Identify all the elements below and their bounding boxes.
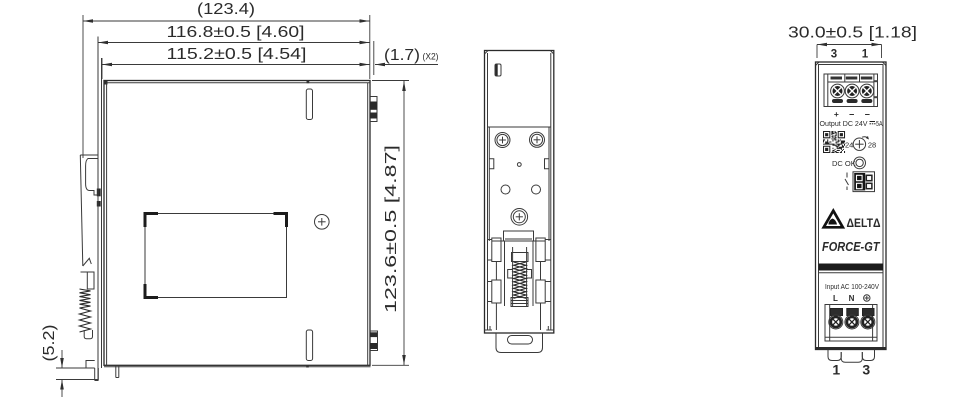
svg-text:30.0±0.5 [1.18]: 30.0±0.5 [1.18] [788,25,917,42]
svg-text:116.8±0.5 [4.60]: 116.8±0.5 [4.60] [167,24,305,41]
svg-text:−: − [849,110,854,120]
svg-text:L: L [833,294,838,303]
svg-text:3: 3 [831,49,837,61]
svg-text:(X2): (X2) [423,52,439,63]
svg-text:28: 28 [868,141,876,150]
svg-text:1: 1 [862,49,869,61]
svg-text:ΔELTΔ: ΔELTΔ [847,218,881,230]
svg-text:24: 24 [845,141,853,150]
svg-text:5A: 5A [876,121,883,128]
svg-text:115.2±0.5 [4.54]: 115.2±0.5 [4.54] [167,46,307,63]
svg-text:1: 1 [832,362,840,378]
svg-text:(123.4): (123.4) [197,1,255,18]
svg-text:(5.2): (5.2) [41,325,58,362]
svg-text:3: 3 [862,362,870,378]
svg-text:−: − [865,110,870,120]
svg-text:DC OK: DC OK [832,159,856,168]
svg-text:FORCE-GT: FORCE-GT [822,240,881,254]
svg-text:123.6±0.5 [4.87]: 123.6±0.5 [4.87] [383,145,400,313]
svg-text:+: + [834,109,839,119]
svg-text:(1.7): (1.7) [384,47,420,64]
svg-text:Output DC 24V: Output DC 24V [820,121,868,128]
svg-text:Input AC 100-240V: Input AC 100-240V [825,282,879,291]
svg-text:N: N [849,294,855,303]
